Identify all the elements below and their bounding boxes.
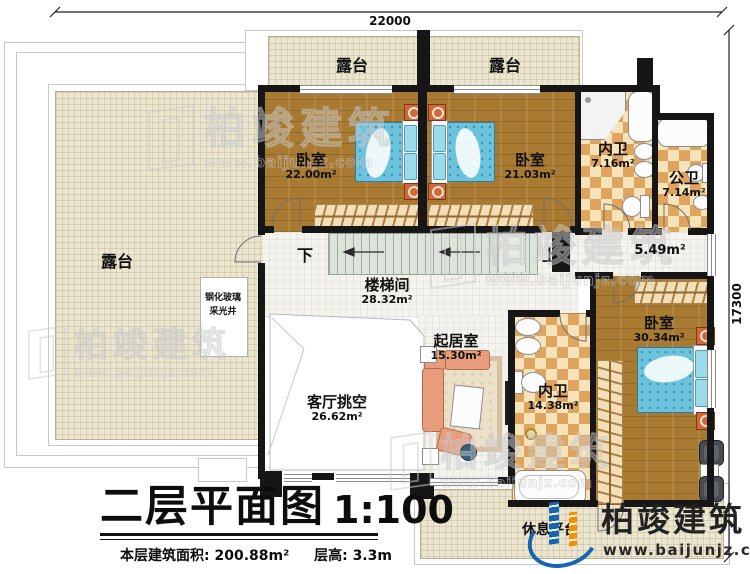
stair-arrow-head <box>344 248 354 256</box>
door-arc <box>614 277 640 303</box>
door-arc <box>544 198 572 226</box>
floor-height-note: 层高: 3.3m <box>314 548 392 564</box>
stair-arrow-head <box>440 248 450 256</box>
plan-scale: 1:100 <box>333 491 454 529</box>
floor-plan: 露台 露台 露台 卧室 22.00m² 卧室 21.03m² 内卫 7.16m²… <box>0 0 750 574</box>
plan-notes: 本层建筑面积: 200.88m² 层高: 3.3m <box>120 545 412 565</box>
brand-name: 柏竣建筑 <box>601 503 745 536</box>
floor-area-note: 本层建筑面积: 200.88m² <box>120 548 289 564</box>
bath-shared-label: 公卫 7.14m² <box>662 170 705 199</box>
lightwell-label: 钢化玻璃 采光井 <box>201 292 245 319</box>
brand-url: www.baijunjz.com <box>603 541 750 559</box>
bedroom-top-left-label: 卧室 22.00m² <box>285 152 336 181</box>
door-arc <box>560 315 586 341</box>
logo-building-icon <box>544 498 564 548</box>
door-arc <box>664 204 690 230</box>
brand-logo: 柏竣建筑 www.baijunjz.com <box>527 497 747 567</box>
logo-building-icon <box>565 508 581 550</box>
stairwell-label: 楼梯间 28.32m² <box>361 277 412 306</box>
living-void-label: 客厅挑空 26.62m² <box>307 394 367 423</box>
door-arc <box>235 236 261 262</box>
landing-area-label: 5.49m² <box>634 244 685 259</box>
bath-ensuite-master-label: 内卫 14.38m² <box>527 383 578 412</box>
bedroom-top-right-label: 卧室 21.03m² <box>504 152 555 181</box>
door-arc <box>272 198 300 226</box>
title-underline-thick <box>100 533 378 536</box>
sitting-room-label: 起居室 15.30m² <box>430 333 481 362</box>
door-arc <box>604 204 630 230</box>
plan-title: 二层平面图 <box>100 486 325 529</box>
bath-ensuite-top-label: 内卫 7.16m² <box>591 141 634 170</box>
title-underline-thin <box>100 539 378 540</box>
bedroom-master-label: 卧室 30.34m² <box>633 315 684 344</box>
